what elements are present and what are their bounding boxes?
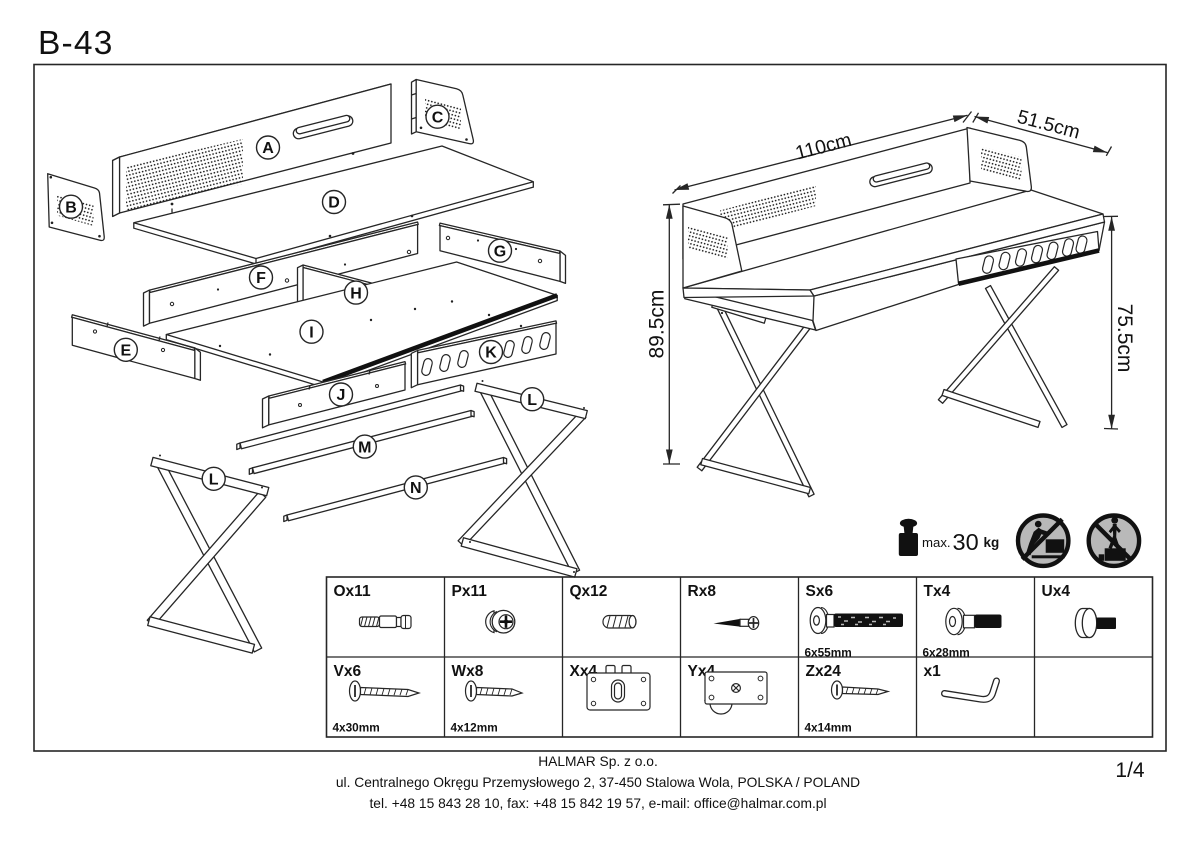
- svg-text:30: 30: [953, 529, 979, 555]
- svg-text:Rx8: Rx8: [688, 583, 717, 600]
- svg-text:Qx12: Qx12: [570, 583, 608, 600]
- svg-text:C: C: [432, 109, 444, 126]
- svg-text:Wx8: Wx8: [452, 663, 484, 680]
- svg-text:J: J: [337, 387, 346, 404]
- svg-text:G: G: [494, 243, 506, 260]
- svg-text:110cm: 110cm: [793, 129, 854, 165]
- svg-text:N: N: [410, 480, 422, 497]
- svg-text:max.: max.: [922, 535, 951, 550]
- svg-text:Ox11: Ox11: [334, 583, 371, 600]
- svg-text:K: K: [485, 345, 497, 362]
- svg-text:L: L: [527, 392, 537, 409]
- svg-text:51.5cm: 51.5cm: [1015, 106, 1082, 144]
- svg-text:kg: kg: [984, 535, 1000, 550]
- svg-text:89.5cm: 89.5cm: [646, 290, 669, 359]
- svg-text:D: D: [328, 195, 340, 212]
- svg-text:B: B: [65, 199, 77, 216]
- svg-text:F: F: [256, 270, 266, 287]
- svg-text:L: L: [209, 471, 219, 488]
- svg-text:75.5cm: 75.5cm: [1113, 304, 1136, 373]
- svg-text:x1: x1: [924, 663, 942, 680]
- svg-text:A: A: [262, 140, 274, 157]
- svg-text:4x12mm: 4x12mm: [451, 721, 498, 735]
- svg-text:1/4: 1/4: [1115, 759, 1145, 782]
- svg-text:H: H: [350, 285, 362, 302]
- svg-text:Tx4: Tx4: [924, 583, 951, 600]
- svg-text:Zx24: Zx24: [806, 663, 842, 680]
- svg-text:I: I: [309, 324, 313, 341]
- svg-text:Vx6: Vx6: [334, 663, 362, 680]
- svg-text:6x28mm: 6x28mm: [923, 646, 970, 660]
- svg-text:Ux4: Ux4: [1042, 583, 1071, 600]
- svg-text:M: M: [358, 439, 371, 456]
- svg-text:B-43: B-43: [38, 25, 114, 62]
- svg-text:tel. +48 15 843 28 10, fax: +4: tel. +48 15 843 28 10, fax: +48 15 842 1…: [369, 796, 826, 811]
- svg-text:6x55mm: 6x55mm: [805, 646, 852, 660]
- svg-text:Px11: Px11: [452, 583, 488, 600]
- svg-text:HALMAR Sp. z o.o.: HALMAR Sp. z o.o.: [538, 754, 658, 769]
- svg-text:4x14mm: 4x14mm: [805, 721, 852, 735]
- svg-text:Sx6: Sx6: [806, 583, 834, 600]
- svg-text:4x30mm: 4x30mm: [333, 721, 380, 735]
- svg-text:E: E: [120, 342, 131, 359]
- svg-text:ul. Centralnego Okręgu Przemys: ul. Centralnego Okręgu Przemysłowego 2, …: [336, 775, 860, 790]
